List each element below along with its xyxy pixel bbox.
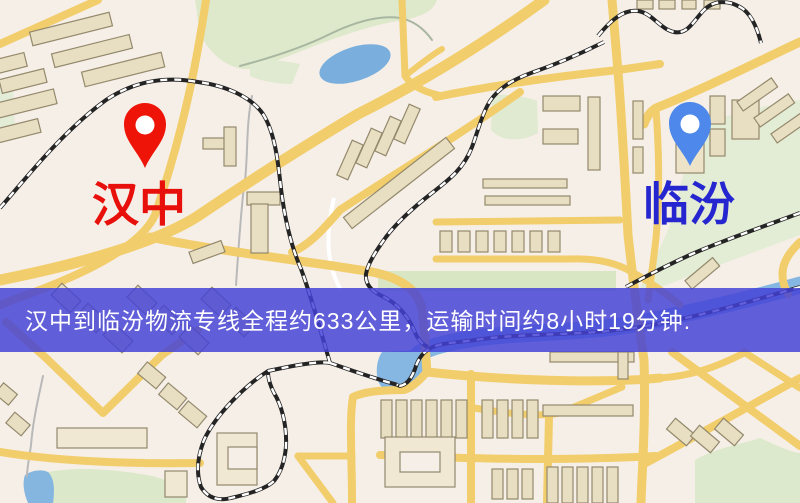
building [527,400,538,438]
building [507,469,518,499]
building [548,231,560,252]
building [618,352,628,379]
building [400,452,440,472]
building [165,471,187,497]
building [458,231,470,252]
building [247,192,280,205]
building [482,400,493,438]
building [228,447,257,469]
building [530,231,542,252]
building [682,0,696,9]
building [633,101,643,139]
building [588,97,600,170]
map-canvas: 汉中到临汾物流专线全程约633公里，运输时间约8小时19分钟. 汉中 临汾 [0,0,800,503]
info-banner: 汉中到临汾物流专线全程约633公里，运输时间约8小时19分钟. [0,288,800,352]
map-screenshot: 汉中到临汾物流专线全程约633公里，运输时间约8小时19分钟. 汉中 临汾 [0,0,800,503]
building [607,467,618,503]
building [543,129,578,144]
origin-label: 汉中 [92,178,186,231]
building [633,147,643,173]
building [577,467,588,503]
pond [24,470,54,503]
building [497,400,508,438]
building [476,231,488,252]
building [543,405,633,416]
banner-text: 汉中到临汾物流专线全程约633公里，运输时间约8小时19分钟. [25,308,691,334]
building [522,469,533,499]
building [485,196,570,205]
building [396,400,407,438]
building [562,467,573,503]
destination-label: 临汾 [643,178,735,230]
building [494,231,506,252]
park-area [491,95,538,140]
origin-pin-hole [136,116,155,135]
building [57,428,147,448]
building [512,400,523,438]
building [224,127,236,166]
building [659,0,675,9]
building [512,231,524,252]
building [411,400,422,438]
building [710,96,725,124]
building [381,400,392,438]
building [456,400,467,438]
building [543,96,580,111]
destination-pin-hole [681,115,700,134]
building [547,467,558,503]
building [441,400,452,438]
building [440,231,452,252]
building [710,129,725,156]
building [592,467,603,503]
building [637,0,653,9]
building [426,400,437,438]
building [483,179,567,188]
building [492,469,503,499]
road [436,220,620,222]
building [251,204,268,253]
